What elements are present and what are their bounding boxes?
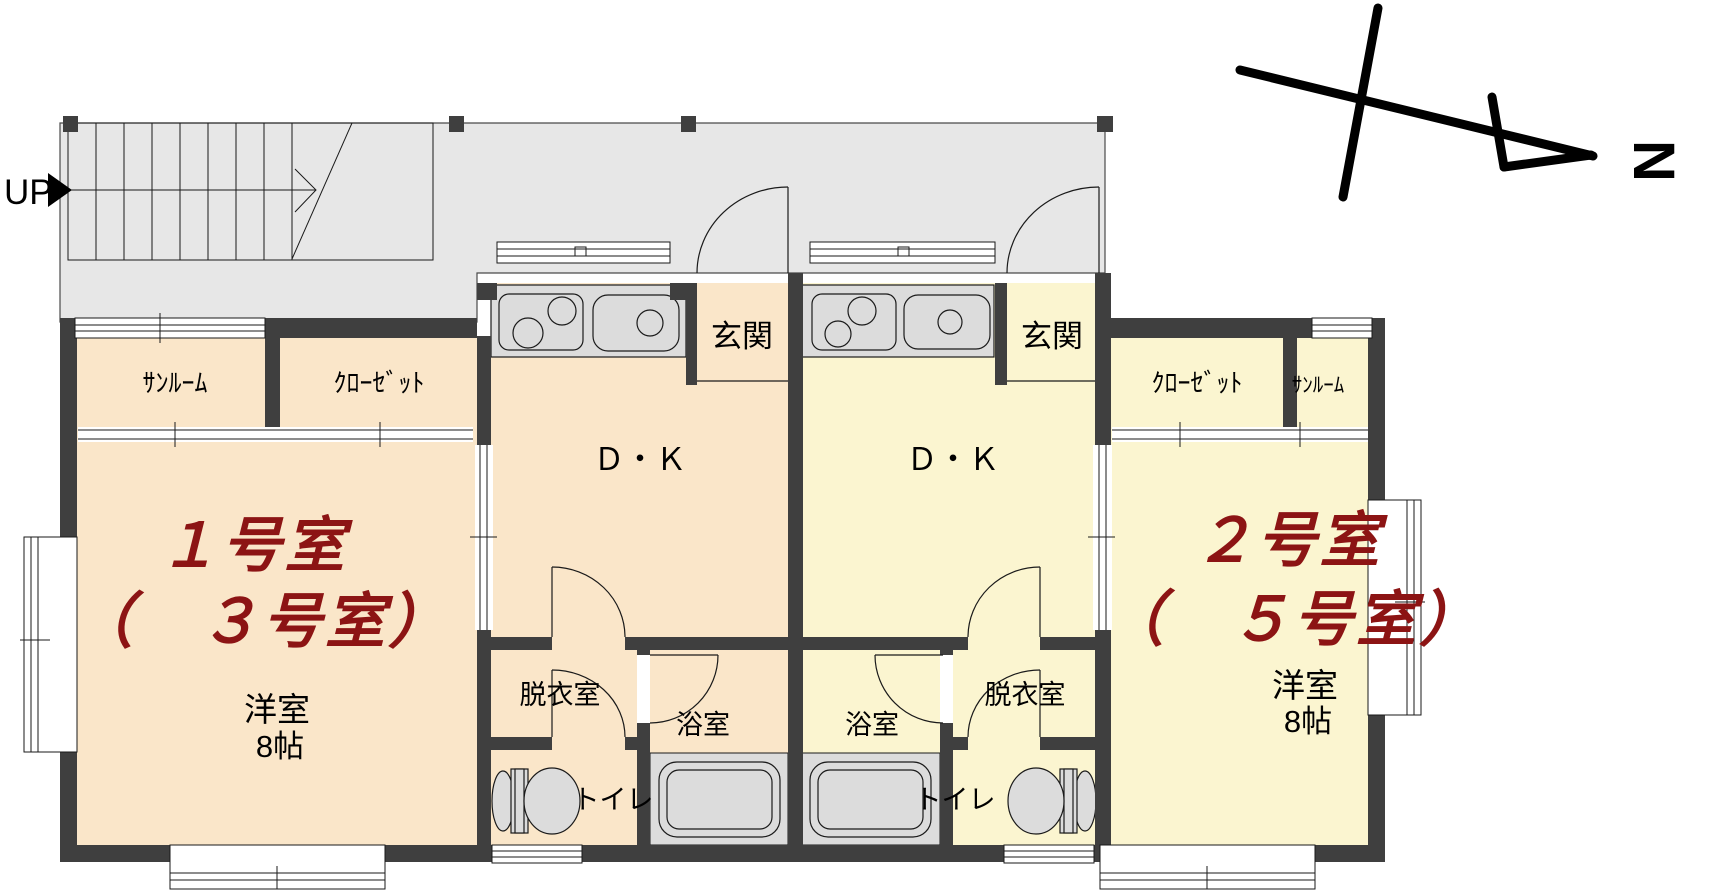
left-toilet-fixture	[492, 768, 580, 834]
right-entrance-label: 玄関	[1021, 319, 1083, 354]
right-unit-alt-number: （ ５号室）	[1104, 586, 1482, 653]
left-sunroom-label: ｻﾝﾙｰﾑ	[142, 368, 207, 398]
left-closet-label: ｸﾛｰｾﾞｯﾄ	[333, 368, 424, 398]
right-toilet-fixture	[1008, 768, 1096, 834]
left-entrance-label: 玄関	[711, 319, 773, 354]
post	[1097, 116, 1113, 132]
kitchen-window	[497, 242, 670, 263]
right-room-type-label: 洋室	[1272, 667, 1338, 704]
sunroom-window	[75, 313, 265, 343]
left-unit-number: １号室	[159, 512, 354, 579]
right-dk-label: Ｄ・Ｋ	[907, 442, 1000, 477]
toilet-window	[492, 845, 582, 863]
floor-plan-page: UP	[0, 0, 1723, 892]
left-toilet-label: トイレ	[573, 785, 654, 815]
right-unit-number: ２号室	[1194, 507, 1389, 574]
up-label: UP	[4, 173, 53, 212]
bath-door-opening	[637, 655, 650, 723]
right-kitchen-counter	[802, 285, 994, 357]
left-room-type-label: 洋室	[244, 691, 310, 728]
unit-dividing-wall	[788, 273, 803, 862]
right-bathroom-label: 浴室	[845, 710, 899, 740]
right-room-size-label: 8帖	[1284, 704, 1332, 739]
floor-plan-drawing: UP	[0, 0, 1723, 892]
left-dressing-room-label: 脱衣室	[520, 680, 601, 710]
left-bathtub	[650, 753, 788, 845]
right-sunroom-label: ｻﾝﾙｰﾑ	[1292, 374, 1345, 397]
post	[681, 116, 696, 132]
bay-window-south-right	[1100, 845, 1315, 889]
post	[63, 116, 78, 132]
left-unit-alt-number: （ ３号室）	[73, 588, 451, 655]
bay-window-west	[20, 537, 77, 752]
right-dressing-room-label: 脱衣室	[985, 680, 1066, 710]
sunroom-window	[1312, 318, 1372, 338]
left-kitchen-counter	[491, 285, 686, 357]
left-room-size-label: 8帖	[256, 729, 304, 764]
bay-window-south-left	[170, 845, 385, 889]
north-arrow-icon	[1240, 8, 1593, 197]
left-bathroom-label: 浴室	[676, 710, 730, 740]
kitchen-window	[810, 242, 995, 263]
bath-door-opening	[940, 655, 953, 723]
toilet-window	[1004, 845, 1094, 863]
right-toilet-label: トイレ	[915, 785, 996, 815]
right-closet-label: ｸﾛｰｾﾞｯﾄ	[1151, 368, 1242, 398]
left-dk-label: Ｄ・Ｋ	[594, 442, 687, 477]
post	[449, 116, 464, 132]
north-label: N	[1621, 140, 1686, 182]
